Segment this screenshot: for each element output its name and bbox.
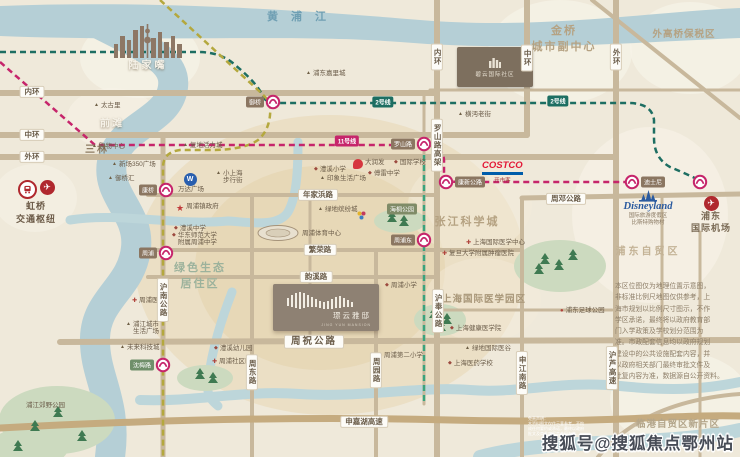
poi-mall-icon: ▲浦江城市生活广场 — [126, 321, 159, 336]
mall-icon: ▲ — [108, 176, 113, 181]
road-label: 内环 — [20, 86, 45, 98]
poi-school-icon: ◆华东师范大学附属周浦中学 — [172, 232, 217, 247]
stadium-icon — [258, 226, 298, 241]
biyun-community-label: 碧云国际社区 — [475, 70, 514, 78]
area-label-line: 临港自贸区新片区 — [636, 416, 720, 430]
station-label: 御桥 — [246, 97, 264, 108]
poi-mall-icon: ▲御桥汇 — [108, 175, 134, 182]
hongqiao-label-line2: 交通枢纽 — [8, 212, 64, 225]
road-label: 外环 — [20, 151, 45, 163]
project-name: 璟云雅邸 — [333, 310, 371, 321]
poi-label: 复旦大学附属肿瘤医院 — [449, 250, 514, 257]
road-label: 周祝公路 — [284, 335, 344, 349]
poi-label: 上海医药学校 — [454, 360, 493, 367]
poi-school-icon: ◆澧溪幼儿园 — [214, 345, 252, 352]
road-label: 中环 — [20, 129, 45, 141]
costco-logo: COSTCO — [482, 161, 523, 171]
school-icon: ◆ — [450, 326, 454, 331]
area-label-line: 绿色生态 — [174, 259, 226, 275]
station-label: 康新公路 — [455, 177, 485, 188]
disclaimer-line: 门入学政策及学校划分范围为 — [615, 326, 731, 337]
mall-icon: ▲ — [216, 171, 221, 176]
poi-label-line: 绿地缤纷城 — [325, 206, 358, 213]
poi-mall-icon: ▲横沔老街 — [458, 111, 491, 118]
poi-label-line: 傅雷中学 — [374, 170, 400, 177]
poi-label-line: 太古里 — [101, 102, 121, 109]
poi-label: 复地活力城 — [190, 142, 223, 149]
poi-label: 小上海步行街 — [223, 170, 243, 185]
disclaimer-line: 非标准比例尺地图仅供参考，上 — [615, 292, 731, 303]
map-disclaimer-text: 本区位图仅为地理位置示意图，非标准比例尺地图仅供参考，上海市规划以比例尺寸图示，… — [615, 281, 731, 383]
metro-station-icon — [418, 234, 430, 246]
poi-label-line: 浦东嘉里城 — [313, 70, 346, 77]
disney-sub1: 国际旅游度假区 — [616, 213, 680, 220]
poi-none: 周浦体育中心 — [302, 230, 341, 237]
poi-label-line: 周浦第二小学 — [384, 352, 423, 359]
castle-icon — [633, 188, 663, 202]
hongqiao-label-line1: 虹桥 — [8, 199, 64, 212]
poi-label-line: 步行街 — [223, 177, 243, 184]
poi-mall-icon: ▲未来科技城 — [120, 344, 159, 351]
mall-icon: ▲ — [320, 176, 325, 181]
poi-label-line: 上海医药学校 — [454, 360, 493, 367]
poi-label: 横沔老街 — [465, 111, 491, 118]
poi-label: 大润发 — [365, 159, 385, 166]
school-icon: ◆ — [314, 167, 318, 172]
poi-label: 国际学校 — [400, 159, 426, 166]
mall-icon: ▲ — [92, 144, 97, 149]
star-icon: ★ — [176, 204, 184, 213]
hongqiao-hub: ✈ 虹桥 交通枢纽 — [8, 180, 64, 225]
area-label: 前滩 — [100, 115, 124, 130]
costco-chinese-label: 开市客 — [482, 176, 523, 184]
poi-label: 浦东嘉里城 — [313, 70, 346, 77]
disclaimer-line: 本区位图仅为地理位置示意图， — [615, 281, 731, 292]
area-label-line: 张江科学城 — [435, 213, 500, 229]
disclaimer-line: 批复内容为准，数据源自公开资料。 — [615, 371, 731, 382]
road-label: 内环 — [431, 44, 443, 71]
poi-label: 浦东足球公园 — [566, 307, 605, 314]
road-label: 中环 — [521, 45, 533, 72]
poi-wanda-logo: W万达广场 — [178, 173, 204, 193]
disclaimer-line: 学区承诺，最终将以政府教育部 — [615, 315, 731, 326]
watermark: 搜狐号@搜狐焦点鄂州站 — [542, 430, 734, 454]
road-label: 周东路 — [246, 354, 258, 390]
poi-school-icon: ◆国际学校 — [394, 159, 426, 166]
poi-label: 上海国际医学中心 — [473, 239, 525, 246]
school-icon: ◆ — [385, 283, 389, 288]
disclaimer-line: 建设中的公共设施配套内容，并 — [615, 349, 731, 360]
mall-icon: ▲ — [318, 207, 323, 212]
road-label: 沪南公路 — [157, 278, 169, 322]
mall-icon: ▲ — [458, 112, 463, 117]
poi-label-line: 浦东足球公园 — [566, 307, 605, 314]
poi-label: 新场350广场 — [119, 161, 156, 168]
poi-dot-icon: ●浦东足球公园 — [560, 307, 605, 314]
poi-label: 澧溪小学 — [320, 166, 346, 173]
mall-icon: ▲ — [94, 103, 99, 108]
poi-label: 未来科技城 — [127, 344, 160, 351]
poi-mall-icon: ▲太古里 — [94, 102, 120, 109]
poi-label-line: 上海健康医学院 — [456, 325, 502, 332]
poi-school-icon: ◆澧溪小学 — [314, 166, 346, 173]
disclaimer-line: 准。市政配套信息均以政府规划 — [615, 337, 731, 348]
poi-label: 周浦第二小学 — [384, 352, 423, 359]
poi-star-icon: ★周浦镇政府 — [176, 203, 219, 213]
poi-mall-icon: ▲购物中心 — [92, 143, 125, 150]
hospital-icon: ✚ — [466, 240, 471, 246]
station-label: 康桥 — [139, 185, 157, 196]
road-label: 韵溪路 — [300, 271, 333, 283]
metro-station-icon — [267, 96, 279, 108]
poi-label-line: 浦江郊野公园 — [26, 402, 65, 409]
poi-label-line: 周浦小学 — [391, 282, 417, 289]
poi-label: 华东师范大学附属周浦中学 — [178, 232, 217, 247]
area-label: 陆家嘴 — [129, 57, 168, 72]
costco-store: COSTCO 开市客 — [482, 161, 523, 184]
metro-station-icon — [157, 359, 169, 371]
hospital-icon: ✚ — [132, 298, 137, 304]
disclaimer-line: 海市规划以比例尺寸图示，不作 — [615, 304, 731, 315]
poi-label-line: 周浦镇政府 — [186, 203, 219, 210]
dot-icon: ● — [560, 308, 564, 314]
poi-label: 周浦体育中心 — [302, 230, 341, 237]
poi-mall-icon: ▲浦东嘉里城 — [306, 70, 345, 77]
area-label-line: 城市副中心 — [532, 38, 597, 54]
metro-station-icon — [160, 247, 172, 259]
station-label: 周浦 — [139, 248, 157, 259]
area-label: 张江科学城 — [435, 213, 500, 229]
area-label: 外高桥保税区 — [652, 26, 715, 40]
poi-label-line: 万达广场 — [178, 186, 204, 193]
hospital-icon: ✚ — [212, 359, 217, 365]
metro-station-icon — [160, 184, 172, 196]
mall-icon: ▲ — [183, 143, 188, 148]
school-icon: ◆ — [214, 346, 218, 351]
station-label: 迪士尼 — [641, 177, 665, 188]
mall-icon: ▲ — [306, 71, 311, 76]
mall-icon: ▲ — [465, 346, 470, 351]
poi-label-line: 复旦大学附属肿瘤医院 — [449, 250, 514, 257]
metro-station-icon — [626, 176, 638, 188]
map-background — [0, 0, 740, 457]
poi-label-line: 澧溪幼儿园 — [220, 345, 253, 352]
disneyland-logo: Disneyland — [616, 202, 680, 213]
poi-label-line: 御桥汇 — [115, 175, 135, 182]
poi-label-line: 附属周浦中学 — [178, 239, 217, 246]
poi-label-line: 生活广场 — [133, 328, 159, 335]
area-label-line: 上海国际医学园区 — [442, 291, 526, 305]
poi-mall-icon: ▲印象生活广场 — [320, 175, 366, 182]
school-icon: ◆ — [448, 361, 452, 366]
area-label: 上海国际医学园区 — [442, 291, 526, 305]
area-label: 绿色生态居住区 — [174, 259, 226, 291]
road-label: 罗山路高架 — [431, 119, 443, 172]
road-label: 申嘉湖高速 — [340, 416, 388, 428]
rtmart-logo — [353, 159, 363, 169]
poi-mall-icon: ▲绿地缤纷城 — [318, 206, 357, 213]
poi-label: 绿地缤纷城 — [325, 206, 358, 213]
plane-icon: ✈ — [704, 196, 719, 211]
metro-line-badge: 2号线 — [372, 97, 393, 108]
metro-station-icon — [418, 138, 430, 150]
poi-hospital-icon: ✚复旦大学附属肿瘤医院 — [442, 250, 514, 257]
metro-station-icon — [694, 176, 706, 188]
poi-school-icon: ◆周浦第二小学 — [378, 352, 423, 359]
project-name-en: JING YUN MANSION — [321, 323, 371, 327]
poi-mall-icon: ▲小上海步行街 — [216, 170, 242, 185]
poi-rtmart-logo: 大润发 — [353, 159, 385, 169]
poi-label-line: 横沔老街 — [465, 111, 491, 118]
train-icon — [18, 180, 37, 199]
road-label: 年家浜路 — [298, 189, 338, 201]
poi-mall-icon: ▲新场350广场 — [112, 161, 156, 168]
school-icon: ◆ — [172, 233, 176, 238]
metro-line-badge: 2号线 — [547, 96, 568, 107]
poi-label: 周浦小学 — [391, 282, 417, 289]
pudong-airport: ✈ 浦东 国际机场 — [686, 196, 736, 234]
mall-icon: ▲ — [126, 322, 131, 327]
road-label: 繁荣路 — [304, 244, 337, 256]
poi-label: 上海健康医学院 — [456, 325, 502, 332]
poi-mall-icon: ▲绿地国际医谷 — [465, 345, 511, 352]
poi-label-line: 新场350广场 — [119, 161, 156, 168]
poi-label-line: 印象生活广场 — [327, 175, 366, 182]
hospital-icon: ✚ — [442, 251, 447, 257]
poi-school-icon: ◆傅雷中学 — [368, 170, 400, 177]
poi-label: 印象生活广场 — [327, 175, 366, 182]
airport-label-line2: 国际机场 — [686, 223, 736, 235]
map-tag: 海桐公园 — [387, 204, 417, 215]
poi-label: 傅雷中学 — [374, 170, 400, 177]
road-label: 沪芦高速 — [606, 346, 618, 390]
poi-label: 万达广场 — [178, 186, 204, 193]
poi-label: 太古里 — [101, 102, 121, 109]
poi-label: 御桥汇 — [115, 175, 135, 182]
area-label-line: 外高桥保税区 — [652, 26, 715, 40]
metro-line-badge: 11号线 — [335, 136, 359, 147]
mall-icon: ▲ — [120, 345, 125, 350]
station-label: 沈梅路 — [130, 360, 154, 371]
project-card: 璟云雅邸 JING YUN MANSION — [273, 284, 379, 331]
poi-label: 购物中心 — [99, 143, 125, 150]
poi-school-icon: ◆上海健康医学院 — [450, 325, 501, 332]
poi-label-line: 大润发 — [365, 159, 385, 166]
airport-label-line1: 浦东 — [686, 211, 736, 223]
poi-label: 浦江郊野公园 — [26, 402, 65, 409]
costco-logo-bar — [482, 172, 523, 175]
poi-label-line: 购物中心 — [99, 143, 125, 150]
area-label-line: 居住区 — [174, 275, 226, 291]
colorful-marker-icon — [356, 208, 367, 226]
poi-label-line: 澧溪小学 — [320, 166, 346, 173]
road-label: 申江南路 — [516, 351, 528, 395]
area-label-line: 浦东自贸区 — [616, 243, 681, 258]
poi-label: 浦江城市生活广场 — [133, 321, 159, 336]
poi-label-line: 未来科技城 — [127, 344, 160, 351]
poi-school-icon: ◆上海医药学校 — [448, 360, 493, 367]
poi-label: 周浦镇政府 — [186, 203, 219, 210]
poi-hospital-icon: ✚上海国际医学中心 — [466, 239, 525, 246]
area-label-line: 金桥 — [532, 22, 597, 38]
disclaimer-line: 以政府相关部门最终审批文件及 — [615, 360, 731, 371]
plane-icon: ✈ — [40, 180, 55, 195]
huangpu-river-label: 黄浦江 — [267, 8, 339, 24]
poi-label-line: 国际学校 — [400, 159, 426, 166]
area-label: 浦东自贸区 — [616, 243, 681, 258]
building-icon — [488, 56, 502, 68]
road-label: 周邓公路 — [546, 193, 586, 205]
poi-school-icon: ◆周浦小学 — [385, 282, 417, 289]
poi-label-line: 周浦体育中心 — [302, 230, 341, 237]
poi-label-line: 上海国际医学中心 — [473, 239, 525, 246]
road-label: 周园路 — [370, 352, 382, 388]
school-icon: ◆ — [394, 160, 398, 165]
poi-none: 浦江郊野公园 — [26, 402, 65, 409]
road-label: 沪奉公路 — [432, 289, 444, 333]
road-label: 外环 — [610, 44, 622, 71]
school-icon: ◆ — [174, 226, 178, 231]
wanda-logo: W — [184, 173, 197, 186]
poi-label: 澧溪幼儿园 — [220, 345, 253, 352]
area-label: 临港自贸区新片区 — [636, 416, 720, 430]
poi-label-line: 绿地国际医谷 — [472, 345, 511, 352]
metro-station-icon — [440, 176, 452, 188]
mall-icon: ▲ — [112, 162, 117, 167]
poi-mall-icon: ▲复地活力城 — [183, 142, 222, 149]
school-icon: ◆ — [368, 171, 372, 176]
poi-label: 绿地国际医谷 — [472, 345, 511, 352]
disney-sub2: 比斯特购物村 — [616, 220, 680, 227]
station-label: 罗山路 — [391, 139, 415, 150]
area-label-line: 陆家嘴 — [129, 57, 168, 72]
map-canvas: 黄浦江 ✈ 虹桥 交通枢纽 碧云国际社区 COSTCO 开市客 Disney — [0, 0, 740, 457]
poi-label-line: 复地活力城 — [190, 142, 223, 149]
area-label: 金桥城市副中心 — [532, 22, 597, 54]
disney-resort: Disneyland 国际旅游度假区 比斯特购物村 — [616, 188, 680, 227]
station-label: 周浦东 — [391, 235, 415, 246]
area-label-line: 前滩 — [100, 115, 124, 130]
